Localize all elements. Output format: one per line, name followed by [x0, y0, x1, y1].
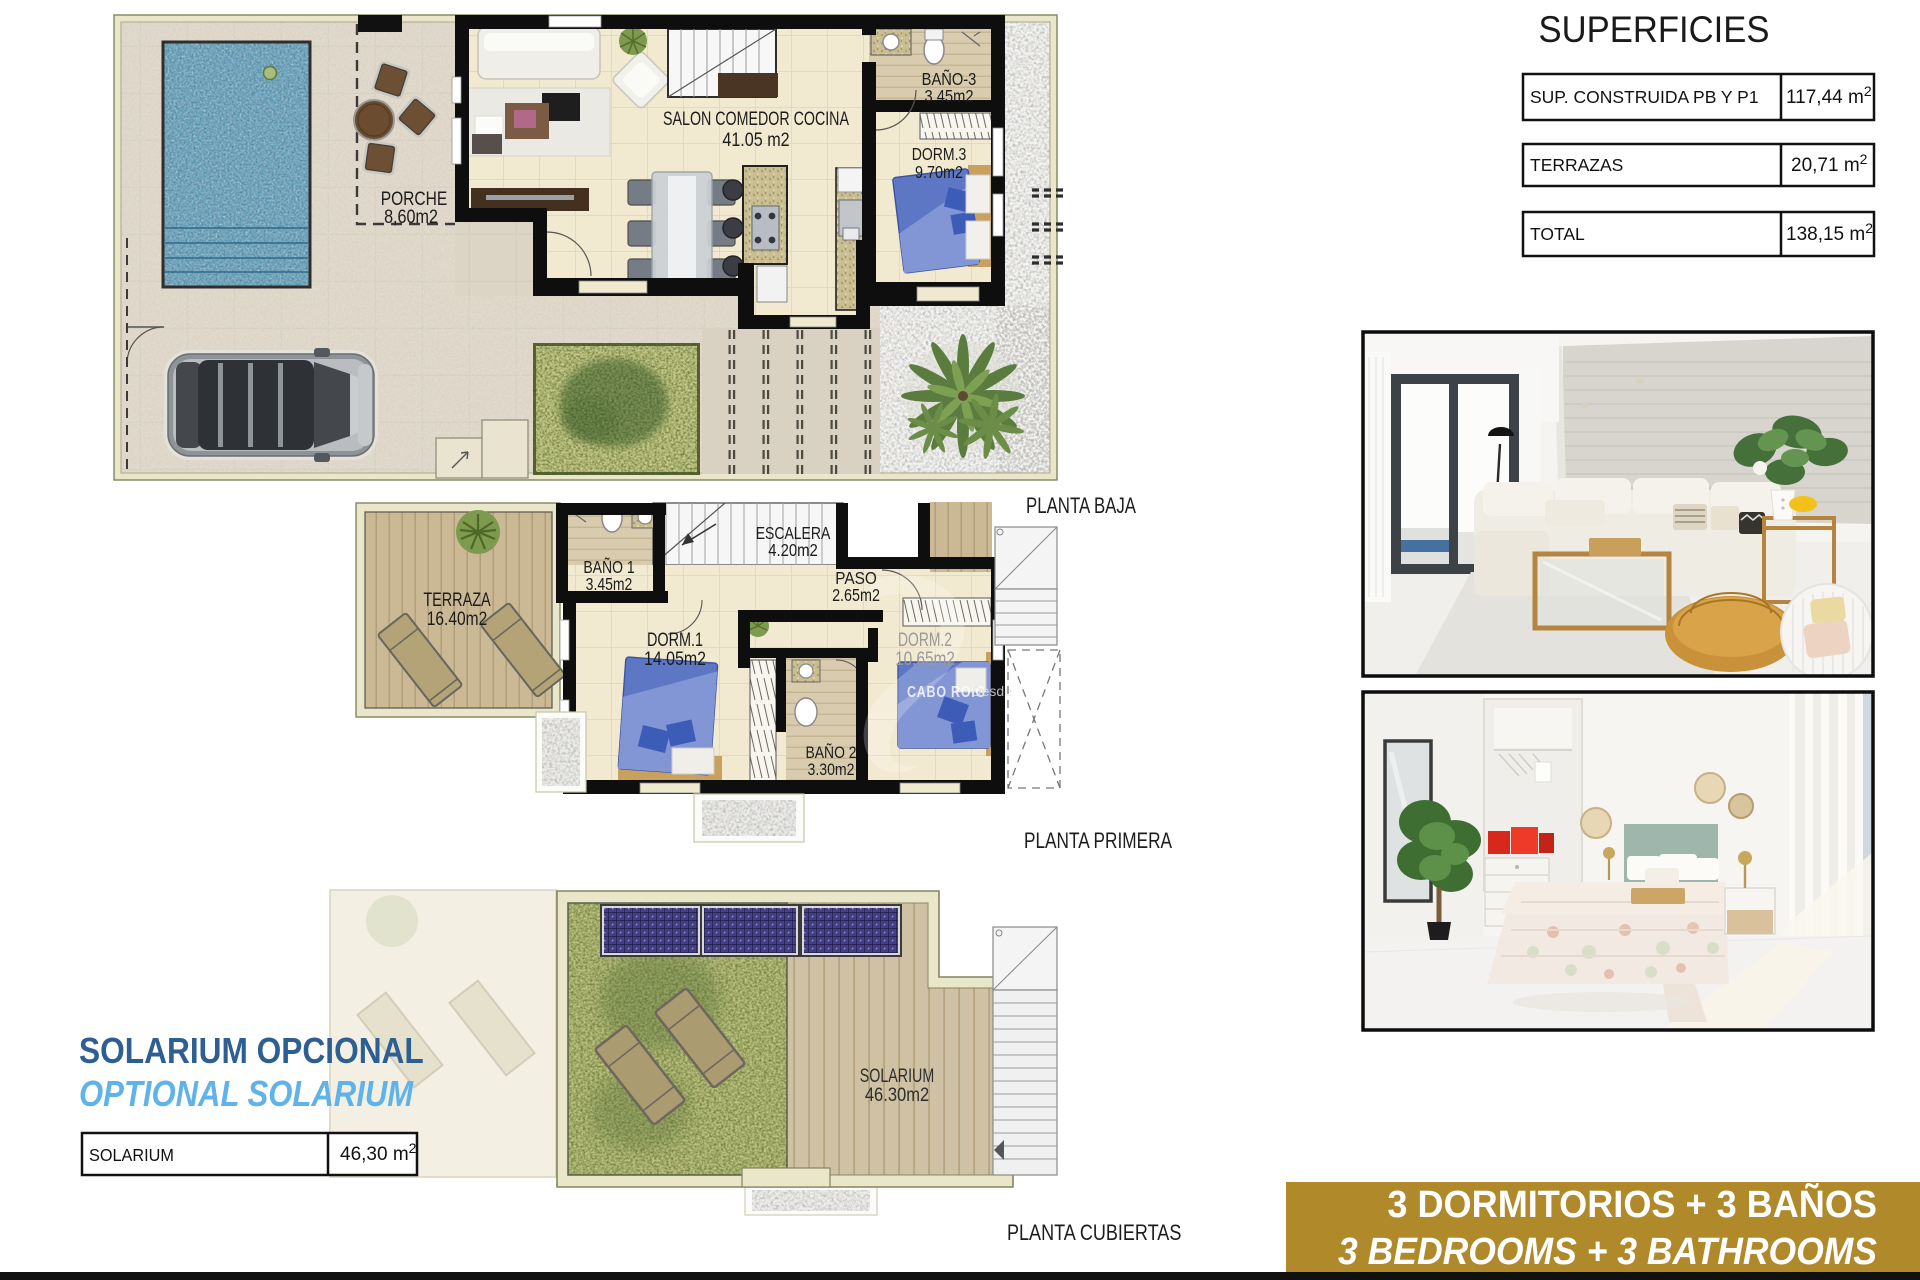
svg-text:DORM.3: DORM.3: [912, 144, 967, 164]
svg-text:Desde: Desde: [972, 683, 1013, 699]
svg-text:14.05m2: 14.05m2: [644, 648, 706, 670]
svg-text:16.40m2: 16.40m2: [427, 608, 488, 630]
svg-text:PLANTA BAJA: PLANTA BAJA: [1026, 494, 1137, 519]
svg-text:BAÑO 2: BAÑO 2: [805, 744, 856, 763]
svg-text:46,30 m2: 46,30 m2: [340, 1140, 417, 1165]
svg-text:4.20m2: 4.20m2: [768, 541, 818, 560]
svg-text:3.45m2: 3.45m2: [924, 87, 973, 106]
svg-text:OPTIONAL SOLARIUM: OPTIONAL SOLARIUM: [79, 1075, 414, 1115]
svg-text:TERRAZAS: TERRAZAS: [1530, 155, 1623, 175]
svg-text:SOLARIUM: SOLARIUM: [89, 1145, 174, 1165]
svg-text:PASO: PASO: [835, 569, 877, 588]
svg-text:2.65m2: 2.65m2: [832, 587, 880, 606]
svg-text:3 DORMITORIOS + 3 BAÑOS: 3 DORMITORIOS + 3 BAÑOS: [1387, 1182, 1877, 1225]
svg-text:SALON COMEDOR COCINA: SALON COMEDOR COCINA: [663, 108, 850, 129]
svg-text:PLANTA PRIMERA: PLANTA PRIMERA: [1024, 829, 1173, 853]
svg-text:9.70m2: 9.70m2: [915, 163, 963, 183]
svg-text:3.30m2: 3.30m2: [807, 761, 854, 779]
svg-text:SOLARIUM OPCIONAL: SOLARIUM OPCIONAL: [79, 1031, 424, 1071]
svg-text:3.45m2: 3.45m2: [586, 576, 633, 595]
svg-text:BAÑO 1: BAÑO 1: [583, 555, 634, 577]
svg-text:TOTAL: TOTAL: [1530, 224, 1585, 244]
svg-text:20,71 m2: 20,71 m2: [1791, 151, 1868, 176]
svg-text:PLANTA CUBIERTAS: PLANTA CUBIERTAS: [1007, 1221, 1181, 1245]
svg-text:8,60m2: 8,60m2: [384, 206, 438, 228]
svg-text:10.65m2: 10.65m2: [895, 647, 955, 669]
svg-text:138,15 m2: 138,15 m2: [1786, 220, 1873, 245]
svg-text:3 BEDROOMS + 3 BATHROOMS: 3 BEDROOMS + 3 BATHROOMS: [1338, 1230, 1877, 1272]
svg-text:46.30m2: 46.30m2: [865, 1084, 929, 1105]
svg-text:SUPERFICIES: SUPERFICIES: [1539, 9, 1770, 50]
svg-text:117,44 m2: 117,44 m2: [1786, 83, 1872, 108]
svg-text:41.05 m2: 41.05 m2: [722, 129, 789, 151]
svg-text:SUP. CONSTRUIDA PB Y P1: SUP. CONSTRUIDA PB Y P1: [1530, 87, 1759, 107]
